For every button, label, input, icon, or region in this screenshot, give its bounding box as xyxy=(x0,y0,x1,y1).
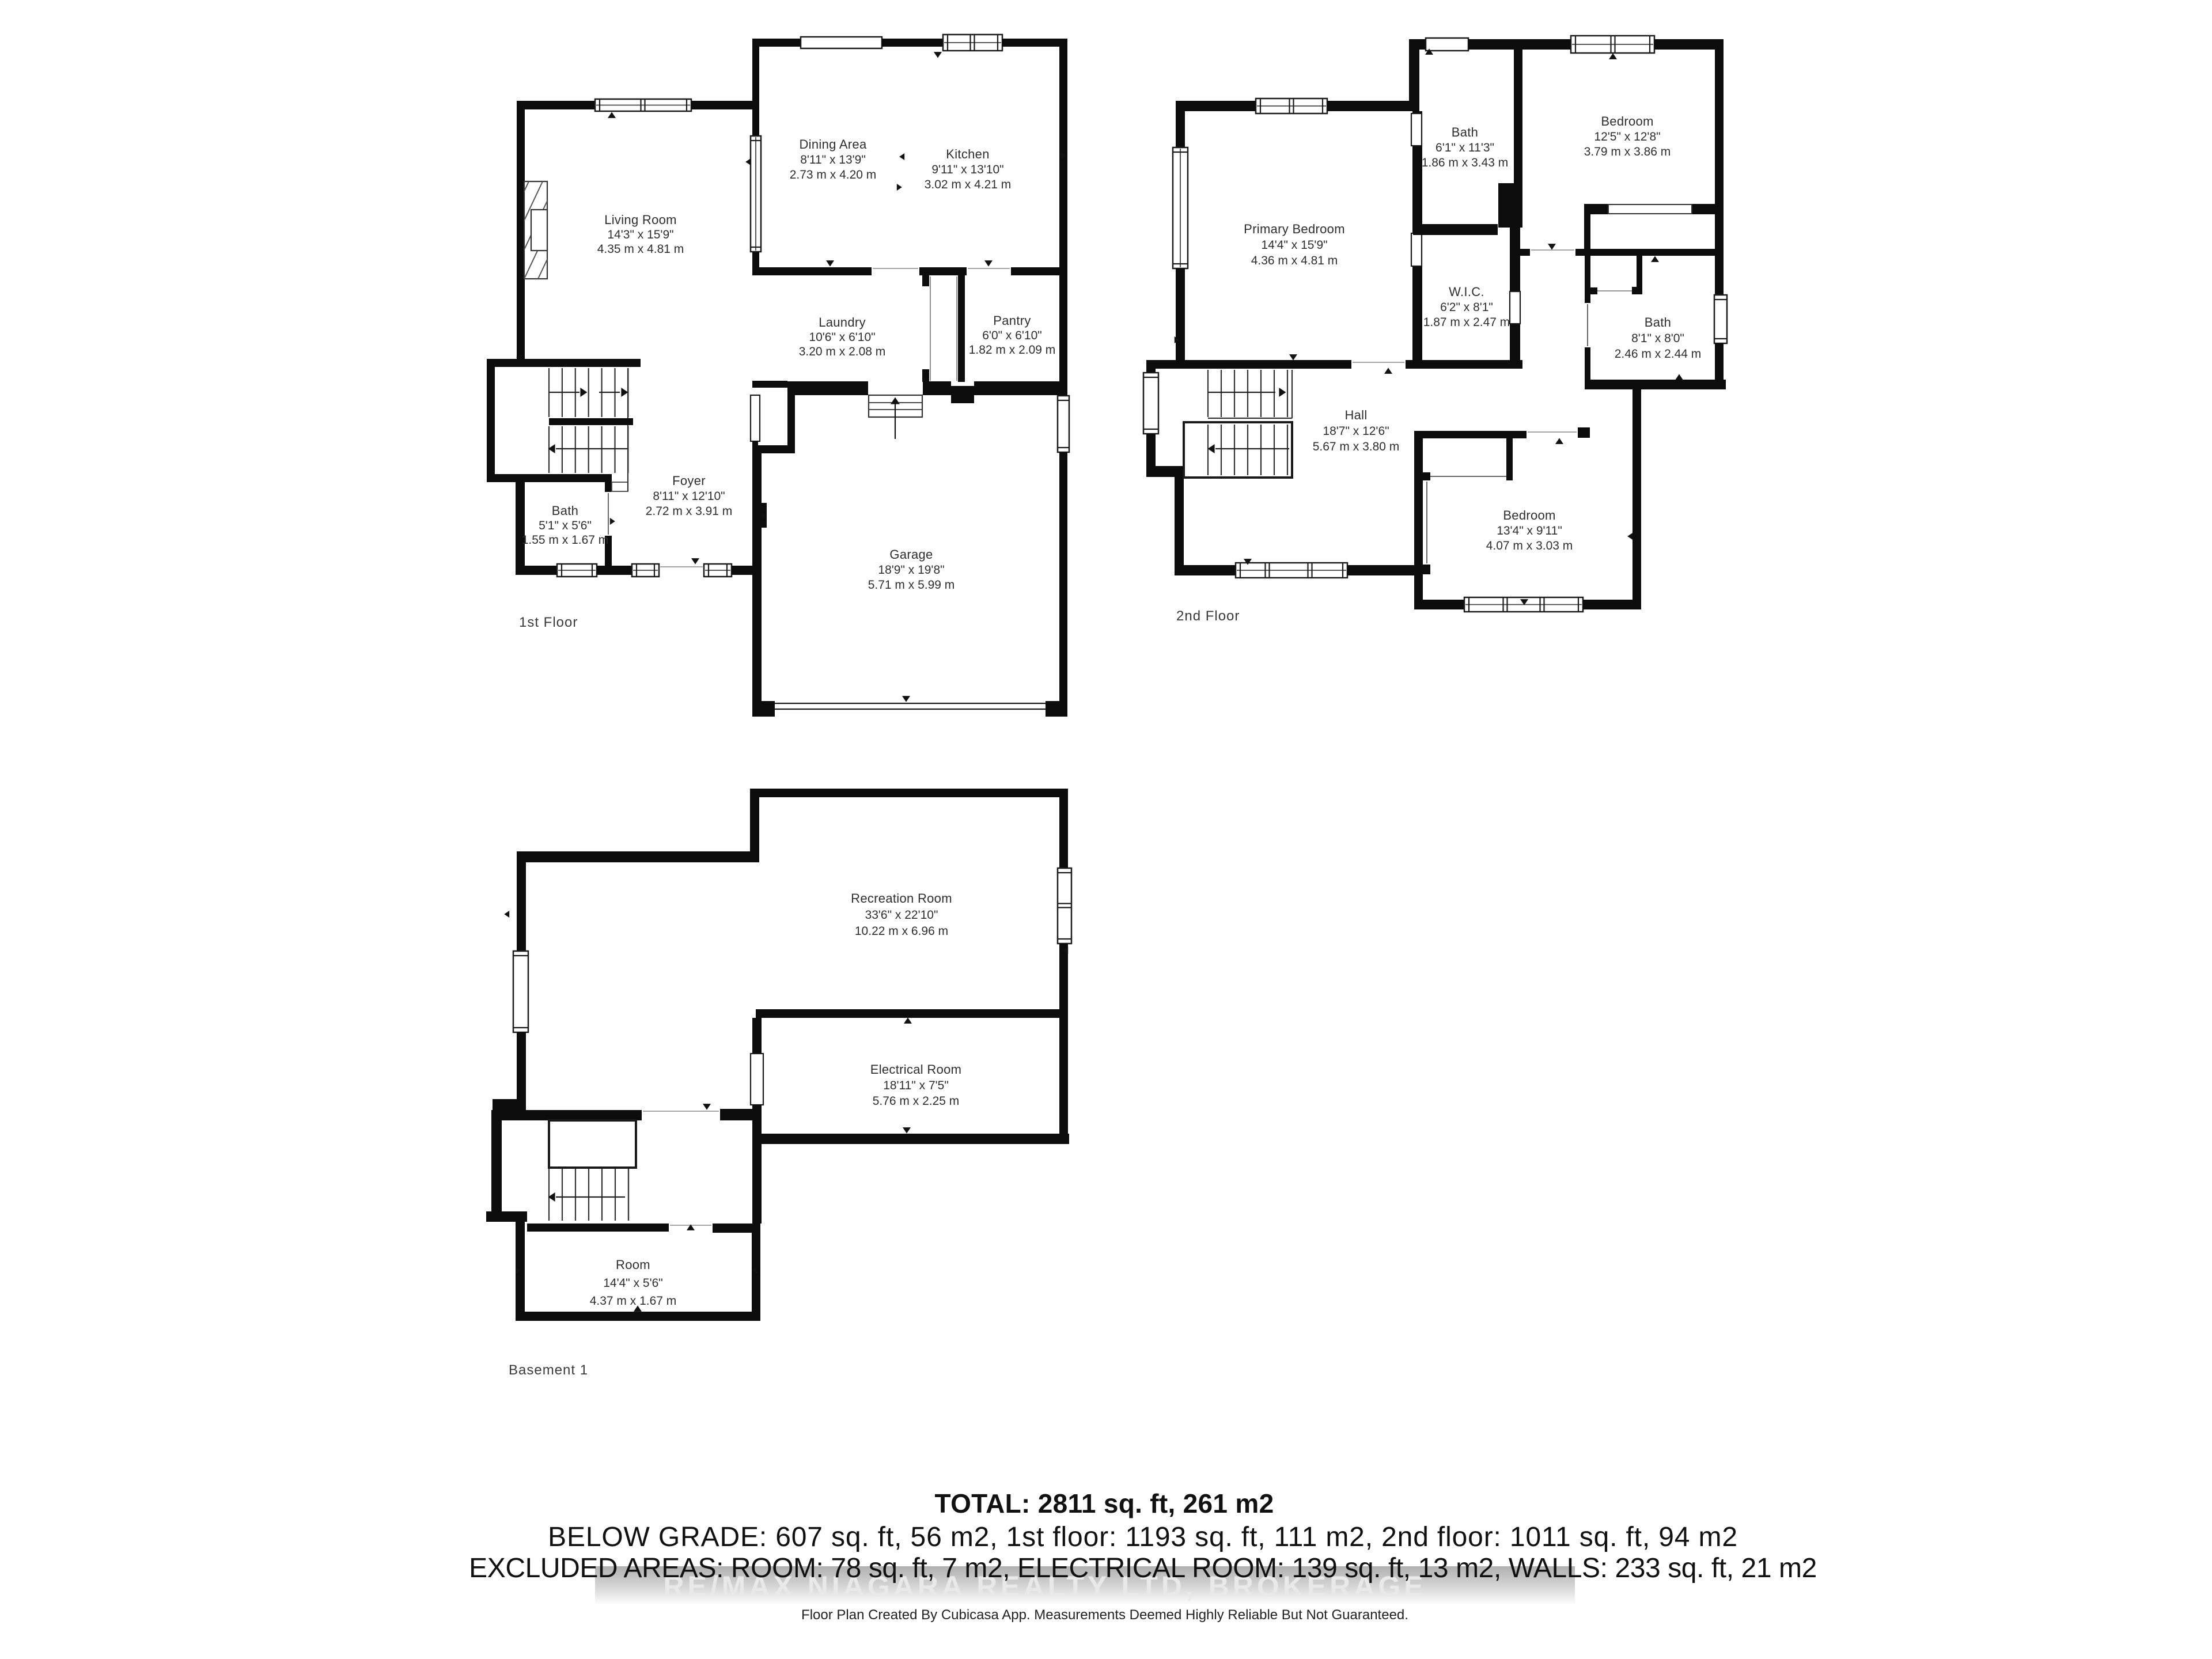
svg-text:Laundry: Laundry xyxy=(819,315,866,329)
svg-text:Living Room: Living Room xyxy=(604,213,677,227)
svg-text:1.55 m x 1.67 m: 1.55 m x 1.67 m xyxy=(522,533,609,547)
svg-text:3.02 m x 4.21 m: 3.02 m x 4.21 m xyxy=(925,178,1012,191)
svg-text:1.82 m x 2.09 m: 1.82 m x 2.09 m xyxy=(969,343,1056,357)
svg-text:5.76 m x 2.25 m: 5.76 m x 2.25 m xyxy=(873,1094,960,1108)
svg-text:W.I.C.: W.I.C. xyxy=(1449,285,1484,299)
svg-text:6'2" x 8'1": 6'2" x 8'1" xyxy=(1440,301,1493,314)
svg-text:Bath: Bath xyxy=(552,503,578,518)
svg-text:33'6" x 22'10": 33'6" x 22'10" xyxy=(865,908,938,922)
svg-text:5.71 m x 5.99 m: 5.71 m x 5.99 m xyxy=(868,578,955,592)
svg-text:18'9" x 19'8": 18'9" x 19'8" xyxy=(878,563,944,577)
svg-text:Bath: Bath xyxy=(1452,125,1478,139)
svg-text:1.87 m x 2.47 m: 1.87 m x 2.47 m xyxy=(1423,316,1510,329)
svg-text:Bath: Bath xyxy=(1645,315,1671,329)
svg-text:Primary Bedroom: Primary Bedroom xyxy=(1244,222,1345,236)
svg-text:8'11" x 13'9": 8'11" x 13'9" xyxy=(800,153,866,166)
svg-text:5'1" x 5'6": 5'1" x 5'6" xyxy=(539,519,592,532)
svg-text:4.37 m x 1.67 m: 4.37 m x 1.67 m xyxy=(590,1294,677,1308)
svg-text:Room: Room xyxy=(616,1257,650,1272)
svg-text:12'5" x 12'8": 12'5" x 12'8" xyxy=(1594,130,1660,143)
svg-text:3.20 m x 2.08 m: 3.20 m x 2.08 m xyxy=(799,345,886,358)
svg-text:5.67 m x 3.80 m: 5.67 m x 3.80 m xyxy=(1313,440,1400,453)
svg-text:8'11" x 12'10": 8'11" x 12'10" xyxy=(653,490,725,503)
svg-text:1.86 m x 3.43 m: 1.86 m x 3.43 m xyxy=(1422,156,1509,169)
svg-text:10.22 m x 6.96 m: 10.22 m x 6.96 m xyxy=(855,925,948,938)
svg-text:Garage: Garage xyxy=(889,547,933,562)
svg-text:TOTAL: 2811 sq. ft, 261 m2: TOTAL: 2811 sq. ft, 261 m2 xyxy=(935,1488,1274,1518)
svg-text:Basement 1: Basement 1 xyxy=(509,1362,588,1378)
svg-text:2.46 m x 2.44 m: 2.46 m x 2.44 m xyxy=(1615,347,1702,361)
svg-text:14'4" x 15'9": 14'4" x 15'9" xyxy=(1261,238,1327,252)
svg-text:3.79 m x 3.86 m: 3.79 m x 3.86 m xyxy=(1584,145,1671,158)
svg-text:Hall: Hall xyxy=(1344,408,1367,422)
svg-text:18'7" x 12'6": 18'7" x 12'6" xyxy=(1323,425,1389,438)
svg-text:Electrical Room: Electrical Room xyxy=(870,1062,962,1077)
svg-text:Bedroom: Bedroom xyxy=(1601,114,1653,128)
svg-text:2.73 m x 4.20 m: 2.73 m x 4.20 m xyxy=(790,168,877,181)
svg-text:Kitchen: Kitchen xyxy=(946,147,989,161)
svg-text:14'4" x 5'6": 14'4" x 5'6" xyxy=(603,1277,663,1290)
svg-text:Bedroom: Bedroom xyxy=(1503,508,1555,522)
svg-text:EXCLUDED AREAS: ROOM: 78 sq. f: EXCLUDED AREAS: ROOM: 78 sq. ft, 7 m2, E… xyxy=(469,1553,1817,1584)
svg-text:6'1" x 11'3": 6'1" x 11'3" xyxy=(1435,141,1494,154)
svg-text:Floor Plan Created By Cubicasa: Floor Plan Created By Cubicasa App. Meas… xyxy=(801,1607,1408,1623)
svg-text:9'11" x 13'10": 9'11" x 13'10" xyxy=(931,163,1003,176)
svg-text:Dining Area: Dining Area xyxy=(799,137,867,151)
svg-text:13'4" x 9'11": 13'4" x 9'11" xyxy=(1497,524,1562,537)
svg-text:2.72 m x 3.91 m: 2.72 m x 3.91 m xyxy=(646,505,733,518)
svg-text:Recreation Room: Recreation Room xyxy=(851,891,952,906)
svg-text:Pantry: Pantry xyxy=(993,313,1031,328)
svg-text:1st Floor: 1st Floor xyxy=(519,615,578,630)
svg-text:BELOW GRADE: 607 sq. ft, 56 m2: BELOW GRADE: 607 sq. ft, 56 m2, 1st floo… xyxy=(548,1522,1738,1552)
svg-text:4.36 m x 4.81 m: 4.36 m x 4.81 m xyxy=(1251,254,1338,267)
svg-text:10'6" x 6'10": 10'6" x 6'10" xyxy=(809,331,875,344)
svg-text:18'11" x 7'5": 18'11" x 7'5" xyxy=(883,1079,949,1092)
svg-text:6'0" x 6'10": 6'0" x 6'10" xyxy=(982,329,1042,342)
svg-text:14'3" x 15'9": 14'3" x 15'9" xyxy=(607,228,673,241)
svg-text:4.07 m x 3.03 m: 4.07 m x 3.03 m xyxy=(1486,539,1573,552)
svg-text:4.35 m x 4.81 m: 4.35 m x 4.81 m xyxy=(597,243,684,256)
svg-text:2nd Floor: 2nd Floor xyxy=(1176,608,1240,624)
svg-text:8'1" x 8'0": 8'1" x 8'0" xyxy=(1631,332,1684,345)
svg-text:Foyer: Foyer xyxy=(672,474,706,488)
